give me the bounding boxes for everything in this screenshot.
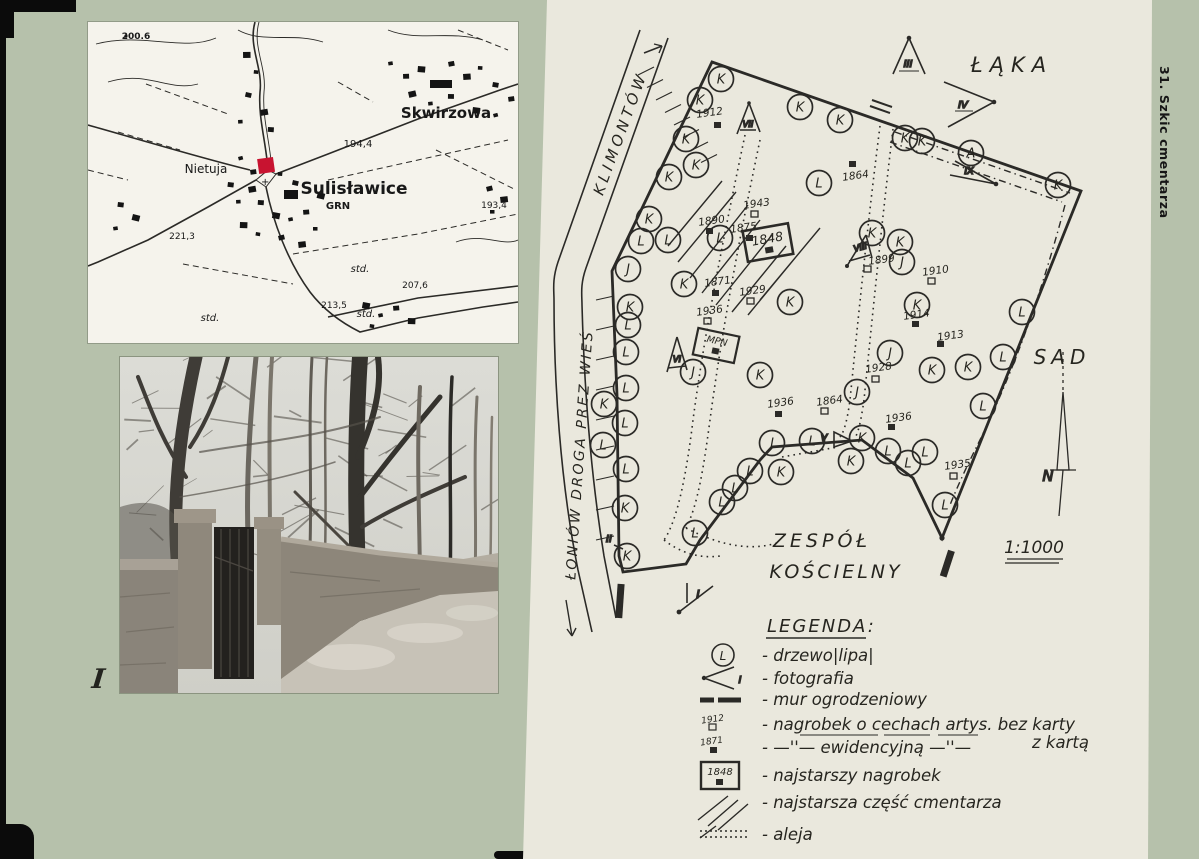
svg-text:1910: 1910 [922, 263, 950, 279]
svg-text:L: L [904, 457, 911, 472]
svg-text:K: K [665, 171, 675, 186]
tree-symbols: KKKKKKLLJKLLLKLLLKKKKKKAKLLKKKKJKLLKKJJK… [591, 67, 1071, 569]
photo-marker-VII: VII [737, 101, 760, 134]
tree-symbol: K [920, 358, 945, 383]
map-label: Nietuja [185, 162, 228, 176]
photo-marker-II: II [606, 534, 623, 549]
tree-symbol: A [959, 141, 984, 166]
north-label: N [1042, 467, 1053, 485]
photo-marker-I: I [677, 583, 713, 614]
svg-text:L: L [622, 463, 629, 478]
tree-symbol: K [592, 392, 617, 417]
tree-symbol: K [828, 108, 853, 133]
svg-text:K: K [621, 502, 631, 517]
tree-symbol: L [591, 433, 616, 458]
grave-marker: 1912 [696, 105, 724, 128]
photo-markers: III IV VII VIII [606, 36, 998, 615]
svg-text:L: L [941, 499, 948, 514]
svg-text:L: L [599, 439, 606, 454]
map-label: 193,4 [481, 201, 507, 211]
grave-marker: 1864 [842, 161, 870, 184]
svg-text:L: L [718, 496, 725, 511]
map-label: Skwirzowa [401, 104, 491, 122]
svg-text:L: L [624, 319, 631, 334]
tree-symbol: J [760, 431, 785, 456]
legend-title: LEGENDA: [767, 616, 876, 637]
svg-text:1936: 1936 [767, 395, 795, 411]
svg-text:L: L [884, 445, 891, 460]
map-roads [88, 22, 518, 332]
legend: LEGENDA: L - drzewo|lipa| I - fotografia… [698, 616, 1089, 844]
svg-text:L: L [691, 527, 698, 542]
tree-symbol: K [839, 449, 864, 474]
svg-text:III: III [904, 59, 913, 70]
label-sad: SAD [1034, 345, 1091, 369]
legend-icon-grave-open: 1912 [701, 713, 725, 730]
svg-text:L: L [622, 346, 629, 361]
map-label: std. [351, 264, 370, 275]
map-label: GRN [326, 201, 350, 212]
scan-mark-topleft2 [0, 12, 14, 38]
svg-text:1943: 1943 [743, 196, 771, 212]
scan-mark-topleft [0, 0, 76, 12]
map-site-cross: + [261, 177, 269, 188]
svg-text:K: K [682, 133, 692, 148]
label-laka: ŁĄKA [970, 53, 1053, 77]
photo-marker-V: V [821, 432, 852, 447]
svg-text:L: L [1018, 306, 1025, 321]
svg-text:L: L [921, 446, 928, 461]
tree-symbol: L [896, 451, 921, 476]
svg-text:L: L [746, 465, 753, 480]
map-labels: 200.6Skwirzowa194,4NietujaSulisławiceGRN… [122, 32, 507, 324]
tree-symbol: K [674, 127, 699, 152]
legend-row-oldpart: - najstarsza część cmentarza [762, 793, 1002, 812]
legend-icon-tree: L [712, 644, 734, 666]
svg-text:K: K [756, 369, 766, 384]
svg-text:I: I [739, 675, 742, 686]
svg-text:K: K [796, 101, 806, 116]
svg-text:1936: 1936 [696, 303, 724, 319]
svg-text:K: K [836, 114, 846, 129]
photo-snow-patch [446, 605, 498, 621]
legend-icon-camera: I [702, 667, 742, 689]
svg-text:K: K [786, 296, 796, 311]
tree-symbol: L [807, 171, 832, 196]
tree-symbol: K [657, 165, 682, 190]
svg-text:L: L [664, 234, 671, 249]
grave-marker: 1929 [739, 283, 767, 304]
gate-southwest [615, 584, 624, 618]
svg-text:J: J [852, 386, 859, 401]
svg-text:1890: 1890 [698, 213, 726, 229]
photo-snow-patch [387, 623, 463, 643]
svg-text:K: K [680, 278, 690, 293]
svg-text:K: K [918, 135, 928, 150]
tree-symbol: K [748, 363, 773, 388]
scan-mark-bottomleft [0, 824, 34, 859]
svg-text:1871: 1871 [700, 735, 724, 748]
svg-text:VII: VII [743, 120, 754, 130]
svg-text:L: L [637, 235, 644, 250]
svg-text:L: L [979, 400, 986, 415]
svg-text:A: A [966, 147, 976, 162]
tree-symbol: L [656, 228, 681, 253]
svg-text:K: K [717, 73, 727, 88]
photo-marker-IV: IV [944, 82, 996, 127]
tree-symbol: K [618, 295, 643, 320]
svg-text:1871: 1871 [704, 274, 732, 290]
svg-text:K: K [600, 398, 610, 413]
legend-icon-oldest: 1848 [701, 762, 739, 789]
tree-symbol: L [1010, 300, 1035, 325]
cemetery-sketch: 1848 MPN KKKKKKLLJKLLLKLLLKKKKKKAKLLKKKK… [517, 0, 1152, 859]
topo-map: + 200.6Skwirzowa194,4NietujaSulisławiceG… [88, 22, 518, 343]
grave-marker: 1928 [865, 360, 893, 382]
svg-text:I: I [696, 588, 699, 601]
svg-text:L: L [815, 177, 822, 192]
tree-symbol: K [672, 272, 697, 297]
map-label: 200.6 [122, 32, 150, 42]
svg-text:K: K [858, 432, 868, 447]
svg-text:IX: IX [964, 166, 974, 177]
tree-symbol: L [616, 313, 641, 338]
legend-row-tree: - drzewo|lipa| [762, 646, 874, 665]
svg-text:IV: IV [958, 100, 969, 111]
tree-symbol: K [910, 129, 935, 154]
svg-text:K: K [964, 361, 974, 376]
svg-text:1912: 1912 [696, 105, 724, 121]
svg-text:L: L [731, 482, 738, 497]
photo-marker-III: III [893, 36, 925, 74]
svg-text:1936: 1936 [885, 410, 913, 426]
svg-text:L: L [716, 232, 723, 247]
tree-symbol: L [913, 440, 938, 465]
svg-text:II: II [606, 534, 612, 545]
svg-text:K: K [777, 466, 787, 481]
svg-text:J: J [623, 263, 630, 278]
svg-text:1864: 1864 [842, 168, 870, 184]
legend-row-grave1: - nagrobek o cechach artys. bez karty [762, 715, 1075, 734]
map-label: 207,6 [402, 281, 428, 291]
grave-marker: 1864 [816, 393, 844, 414]
photograph [120, 357, 498, 693]
north-arrow: N [1042, 352, 1076, 516]
tree-symbol: K [684, 153, 709, 178]
photo-drawing [120, 357, 498, 693]
svg-text:VI: VI [673, 355, 682, 365]
scale-label: 1:1000 [1004, 538, 1064, 558]
grave-marker: 1913 [937, 328, 965, 347]
legend-icon-grave-filled: 1871 [700, 735, 724, 753]
scale-block: 1:1000 [1004, 538, 1064, 563]
svg-text:K: K [696, 94, 706, 109]
svg-text:K: K [868, 227, 878, 242]
svg-text:K: K [645, 213, 655, 228]
svg-text:K: K [928, 364, 938, 379]
topo-map-drawing: + 200.6Skwirzowa194,4NietujaSulisławiceG… [88, 22, 518, 343]
legend-row-grave2b: z kartą [1031, 733, 1089, 752]
grave-marker: 1914 [903, 307, 931, 327]
svg-text:K: K [692, 159, 702, 174]
tree-symbol: K [788, 95, 813, 120]
svg-text:L: L [720, 649, 727, 663]
legend-row-oldest: - najstarszy nagrobek [762, 766, 942, 785]
side-caption: 31. Szkic cmentarza [1157, 66, 1172, 326]
scanned-album-page: + 200.6Skwirzowa194,4NietujaSulisławiceG… [0, 0, 1199, 859]
scan-edge-left [0, 0, 6, 859]
map-label: 213,5 [321, 301, 347, 311]
gate-southeast [939, 535, 954, 577]
grave-marker: 1936 [885, 410, 913, 430]
svg-text:J: J [885, 347, 892, 362]
svg-text:1928: 1928 [865, 360, 893, 376]
tree-symbol: L [971, 394, 996, 419]
tree-symbol: L [738, 459, 763, 484]
tree-symbol: K [956, 355, 981, 380]
photo-label: I [90, 664, 106, 695]
svg-text:L: L [808, 435, 815, 450]
grave-marker: 1943 [743, 196, 771, 217]
tree-symbol: J [845, 380, 870, 405]
svg-text:L: L [622, 382, 629, 397]
tree-symbol: L [991, 345, 1016, 370]
label-zespol-2: KOŚCIELNY [769, 559, 902, 583]
sketch-paper: 1848 MPN KKKKKKLLJKLLLKLLLKKKKKKAKLLKKKK… [517, 0, 1152, 859]
svg-text:1848: 1848 [707, 767, 732, 778]
svg-text:K: K [1054, 179, 1064, 194]
wall-ticks [596, 296, 614, 540]
map-label: std. [201, 313, 220, 324]
svg-text:1864: 1864 [816, 393, 844, 409]
svg-text:L: L [999, 351, 1006, 366]
legend-row-grave2: - —''— ewidencyjną —''— [762, 738, 971, 757]
svg-text:L: L [621, 417, 628, 432]
tree-symbol: K [769, 460, 794, 485]
tree-symbol: K [709, 67, 734, 92]
grave-marker: 1936 [767, 395, 795, 417]
svg-text:1914: 1914 [903, 307, 931, 323]
tree-symbol: K [778, 290, 803, 315]
photo-marker-VI: VI [667, 337, 687, 372]
label-zespol-1: ZESPÓŁ [772, 528, 871, 552]
grave-markers: 1912186419431890187518711929193618991910… [696, 105, 972, 479]
tree-symbol: K [850, 426, 875, 451]
legend-row-alley: - aleja [762, 825, 813, 844]
grave-marker: 1871 [704, 274, 732, 296]
map-label: 221,3 [169, 232, 195, 242]
map-label: Sulisławice [300, 179, 407, 199]
tree-symbol: L [614, 340, 639, 365]
svg-text:J: J [897, 256, 904, 271]
tree-symbol: L [629, 229, 654, 254]
legend-row-wall: - mur ogrodzeniowy [762, 690, 927, 709]
map-label: std. [357, 309, 376, 320]
gate-north [870, 100, 892, 113]
alleys-dotted [664, 126, 893, 557]
svg-text:K: K [847, 455, 857, 470]
tree-symbol: L [723, 476, 748, 501]
svg-text:K: K [896, 236, 906, 251]
legend-row-photo: - fotografia [762, 669, 854, 688]
map-label: 194,4 [344, 139, 373, 150]
mpn-box: MPN [693, 328, 740, 363]
svg-text:J: J [688, 366, 695, 381]
grave-marker: 1910 [922, 263, 950, 284]
svg-text:K: K [623, 550, 633, 565]
tree-symbol: K [613, 496, 638, 521]
mpn-label: MPN [705, 334, 728, 349]
tree-symbol: J [616, 257, 641, 282]
grave-marker: 1936 [696, 303, 724, 324]
